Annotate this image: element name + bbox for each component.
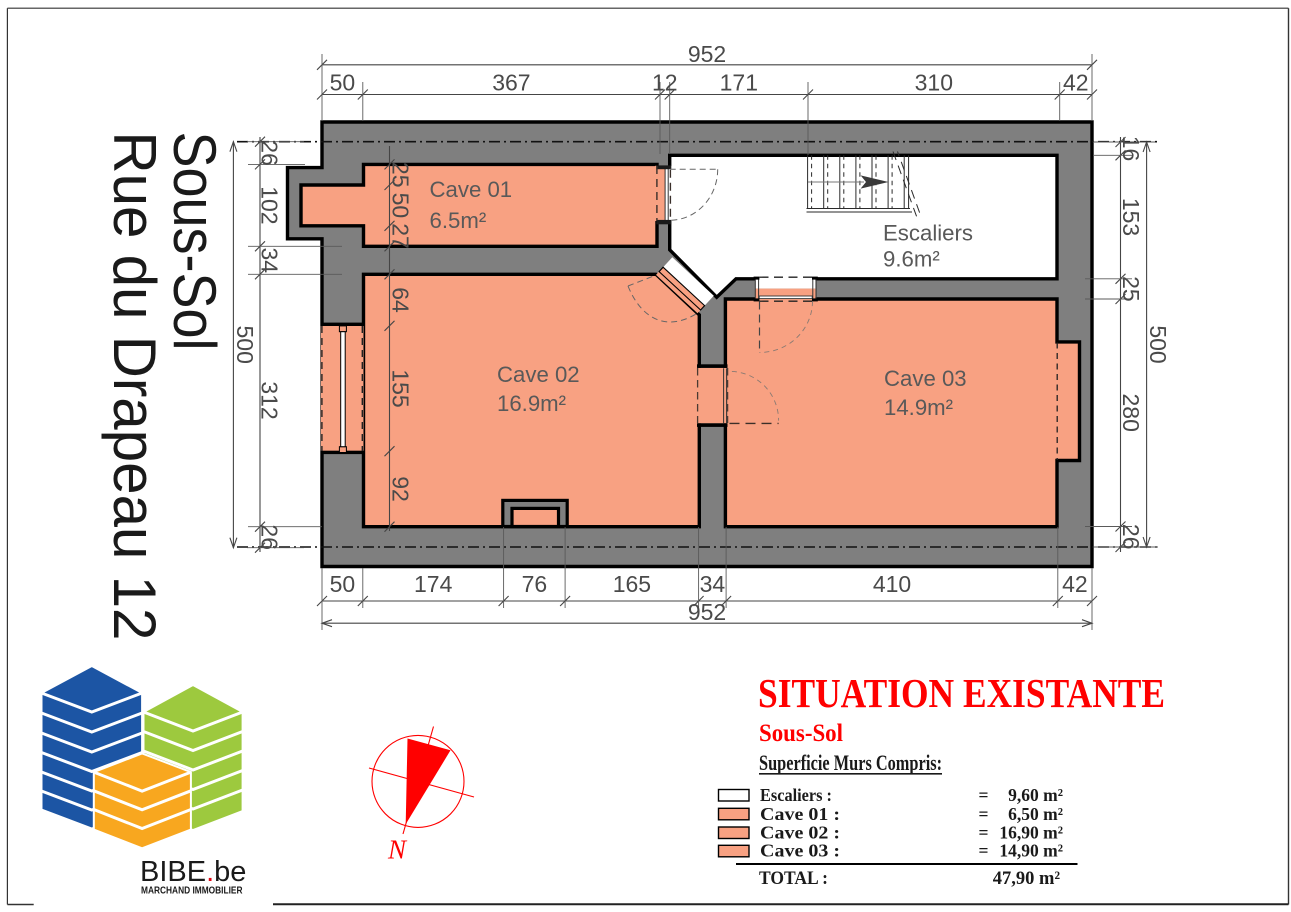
svg-text:47,90 m²: 47,90 m² xyxy=(993,869,1061,889)
svg-text:153: 153 xyxy=(1118,198,1144,236)
svg-text:102: 102 xyxy=(257,186,283,224)
svg-text:Superficie Murs Compris:: Superficie Murs Compris: xyxy=(759,750,942,775)
svg-text:165: 165 xyxy=(613,571,651,597)
svg-text:26: 26 xyxy=(257,140,283,166)
svg-text:Cave 01 :: Cave 01 : xyxy=(760,804,840,824)
svg-text:=: = xyxy=(979,841,989,861)
svg-text:Cave 02: Cave 02 xyxy=(497,362,580,387)
svg-text:Sous-Sol: Sous-Sol xyxy=(161,132,228,351)
svg-text:92: 92 xyxy=(388,476,414,502)
svg-text:MARCHAND IMMOBILIER: MARCHAND IMMOBILIER xyxy=(141,885,243,897)
svg-text:Cave 03: Cave 03 xyxy=(884,366,967,391)
svg-text:310: 310 xyxy=(915,70,953,96)
svg-text:952: 952 xyxy=(688,599,726,625)
svg-text:16,90 m²: 16,90 m² xyxy=(999,823,1063,843)
svg-text:34: 34 xyxy=(257,248,283,274)
svg-text:174: 174 xyxy=(414,571,453,597)
svg-text:6.5m²: 6.5m² xyxy=(430,208,487,233)
svg-text:26: 26 xyxy=(257,524,283,550)
svg-text:BIBE.be: BIBE.be xyxy=(140,856,246,888)
svg-text:TOTAL :: TOTAL : xyxy=(759,869,828,889)
svg-text:25: 25 xyxy=(388,162,414,188)
svg-text:16: 16 xyxy=(1118,136,1144,162)
svg-text:34: 34 xyxy=(700,571,726,597)
svg-text:26: 26 xyxy=(1118,524,1144,550)
svg-text:=: = xyxy=(979,785,989,805)
svg-text:25: 25 xyxy=(1118,276,1144,302)
svg-text:280: 280 xyxy=(1118,394,1144,432)
svg-text:Cave 03 :: Cave 03 : xyxy=(760,841,840,861)
svg-text:367: 367 xyxy=(492,70,530,96)
svg-text:=: = xyxy=(979,823,989,843)
svg-text:50: 50 xyxy=(388,193,414,219)
svg-text:42: 42 xyxy=(1062,571,1088,597)
svg-text:6,50 m²: 6,50 m² xyxy=(1008,804,1063,824)
svg-text:312: 312 xyxy=(257,381,283,419)
svg-text:410: 410 xyxy=(873,571,911,597)
svg-text:952: 952 xyxy=(688,41,726,67)
svg-text:Escaliers :: Escaliers : xyxy=(760,785,832,805)
svg-text:Cave 01: Cave 01 xyxy=(430,177,513,202)
svg-text:171: 171 xyxy=(720,70,758,96)
svg-text:14.9m²: 14.9m² xyxy=(884,395,953,420)
svg-text:=: = xyxy=(979,804,989,824)
svg-text:N: N xyxy=(387,835,408,865)
svg-text:155: 155 xyxy=(388,369,414,407)
svg-text:76: 76 xyxy=(522,571,548,597)
svg-text:27: 27 xyxy=(388,223,414,249)
svg-text:42: 42 xyxy=(1063,70,1089,96)
svg-text:9,60 m²: 9,60 m² xyxy=(1008,785,1063,805)
svg-text:SITUATION EXISTANTE: SITUATION EXISTANTE xyxy=(758,670,1165,716)
svg-text:Cave 02 :: Cave 02 : xyxy=(760,823,840,843)
svg-text:Rue du Drapeau 12: Rue du Drapeau 12 xyxy=(101,132,168,641)
svg-text:9.6m²: 9.6m² xyxy=(883,247,940,272)
svg-text:Sous-Sol: Sous-Sol xyxy=(759,720,843,747)
svg-text:500: 500 xyxy=(1145,325,1171,363)
svg-text:64: 64 xyxy=(388,287,414,313)
svg-text:12: 12 xyxy=(652,70,678,96)
svg-text:50: 50 xyxy=(330,571,356,597)
svg-text:50: 50 xyxy=(330,70,356,96)
svg-text:Escaliers: Escaliers xyxy=(883,221,973,246)
svg-text:500: 500 xyxy=(232,326,258,364)
svg-text:14,90 m²: 14,90 m² xyxy=(999,841,1063,861)
svg-text:16.9m²: 16.9m² xyxy=(497,391,566,416)
